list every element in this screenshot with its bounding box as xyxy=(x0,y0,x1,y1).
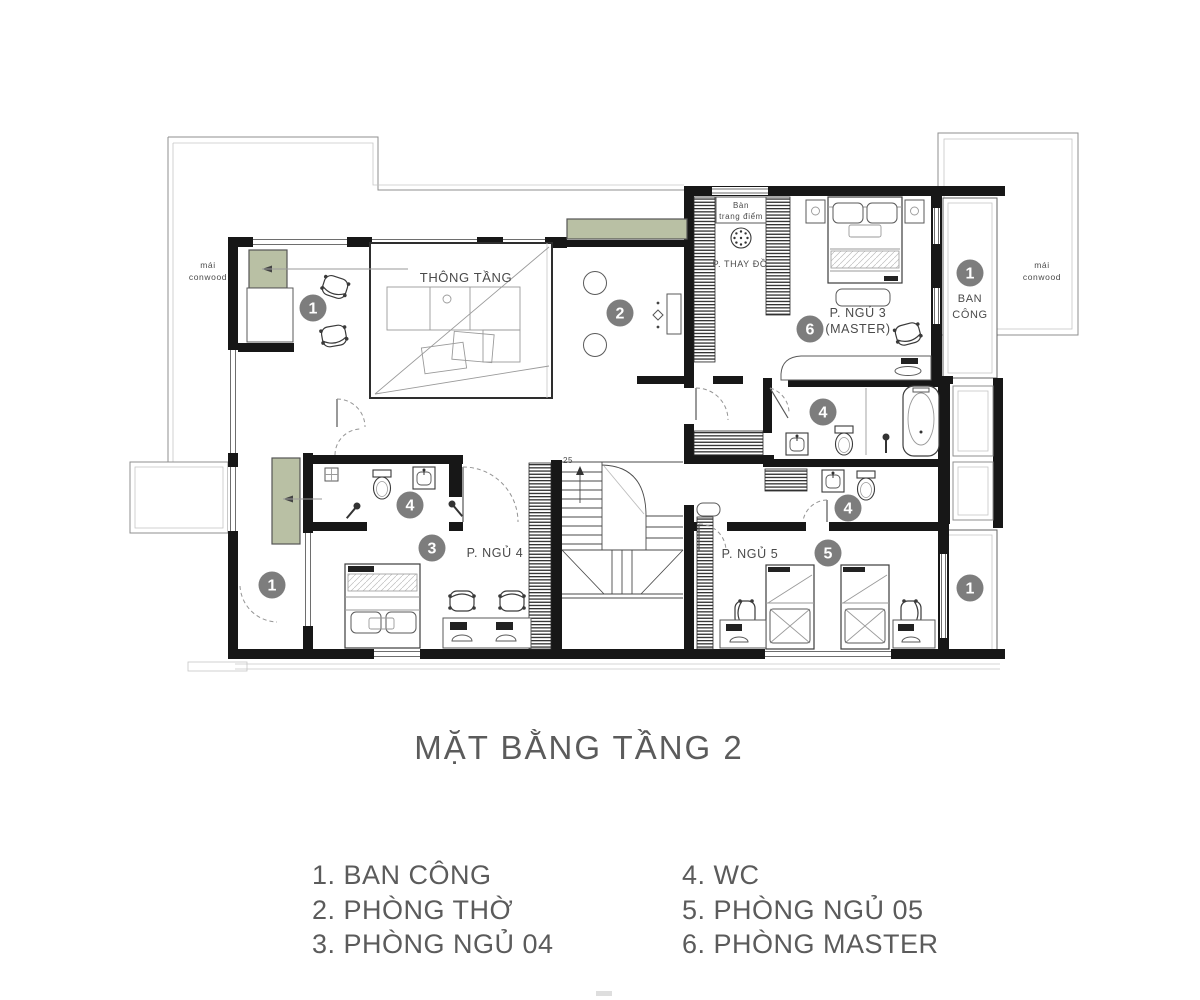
shower-wand xyxy=(344,501,362,520)
legend-item: 4. WC xyxy=(682,858,939,893)
badge-master-bedroom: 6 xyxy=(797,316,824,343)
badge-worship-room: 2 xyxy=(607,300,634,327)
staircase xyxy=(562,462,683,598)
master-bedroom xyxy=(781,197,931,380)
legend-item: 1. BAN CÔNG xyxy=(312,858,554,893)
label-balcony: BAN xyxy=(958,293,982,305)
wardrobe xyxy=(529,463,551,649)
desk-chair xyxy=(498,591,526,611)
label-roof-left: conwood xyxy=(189,272,227,282)
bed-bench xyxy=(836,289,890,306)
cropped-text-fragment xyxy=(596,991,612,996)
label-dressing-table: Bàn xyxy=(733,201,749,210)
legend-column-2: 4. WC 5. PHÒNG NGỦ 05 6. PHÒNG MASTER xyxy=(682,858,939,962)
altar-table xyxy=(653,294,681,334)
nightstand xyxy=(806,200,825,223)
label-dressing-room: P. THAY ĐỒ xyxy=(713,258,768,269)
nightstand xyxy=(893,620,935,648)
label-balcony: CÔNG xyxy=(952,308,987,321)
dressing-room xyxy=(694,197,790,362)
sink xyxy=(822,470,844,492)
wardrobe-cap xyxy=(697,503,720,516)
toilet xyxy=(835,426,853,455)
label-master: (MASTER) xyxy=(825,322,890,336)
wall-fixture xyxy=(325,468,338,481)
legend-column-1: 1. BAN CÔNG 2. PHÒNG THỜ 3. PHÒNG NGỦ 04 xyxy=(312,858,554,962)
svg-text:6: 6 xyxy=(806,322,815,339)
floor-plan-page: 1 2 6 4 4 4 3 5 xyxy=(0,0,1200,1000)
nightstand xyxy=(905,200,924,223)
svg-text:2: 2 xyxy=(616,306,625,323)
badge-bedroom5: 5 xyxy=(815,540,842,567)
label-roof-left: mái xyxy=(200,260,216,270)
double-bed xyxy=(345,564,420,648)
double-bed xyxy=(828,197,902,283)
label-bedroom5: P. NGỦ 5 xyxy=(722,546,779,561)
single-bed xyxy=(766,565,814,649)
desk-chair xyxy=(448,591,476,611)
badge-wc-bedroom4: 4 xyxy=(397,492,424,519)
badge-balcony-top-right: 1 xyxy=(957,260,984,287)
label-dressing-table: trang điểm xyxy=(719,212,763,221)
roof-ledge-left xyxy=(130,462,228,533)
armchair xyxy=(892,321,924,347)
study-desk xyxy=(443,618,531,648)
vanity-counter xyxy=(781,356,931,380)
plan-title: MẶT BẰNG TẦNG 2 xyxy=(0,729,1158,767)
planter-top-middle xyxy=(567,219,687,239)
wardrobe xyxy=(694,197,715,362)
toilet xyxy=(857,471,875,500)
svg-text:3: 3 xyxy=(428,541,437,558)
shower-wand xyxy=(883,434,890,454)
shower-shaft xyxy=(953,462,993,520)
svg-text:1: 1 xyxy=(309,301,318,318)
balcony-cabinet xyxy=(247,288,293,342)
wardrobe xyxy=(766,197,790,315)
badge-balcony-bottom-right: 1 xyxy=(957,575,984,602)
badge-balcony-top-left: 1 xyxy=(300,295,327,322)
label-bedroom4: P. NGỦ 4 xyxy=(467,545,524,560)
bathtub xyxy=(903,386,939,456)
badge-bedroom4: 3 xyxy=(419,535,446,562)
legend-item: 5. PHÒNG NGỦ 05 xyxy=(682,893,939,928)
floor-cushion xyxy=(584,334,607,357)
svg-text:1: 1 xyxy=(268,578,277,595)
badge-wc-bedroom5: 4 xyxy=(835,495,862,522)
lounge-chair xyxy=(319,324,350,348)
shower-shaft xyxy=(953,386,993,456)
floor-plan-drawing: 1 2 6 4 4 4 3 5 xyxy=(0,0,1200,1000)
label-void: THÔNG TẦNG xyxy=(420,270,512,285)
svg-text:1: 1 xyxy=(966,581,975,598)
legend-item: 3. PHÒNG NGỦ 04 xyxy=(312,927,554,962)
legend-item: 2. PHÒNG THỜ xyxy=(312,893,554,928)
badge-wc-master: 4 xyxy=(810,399,837,426)
corridor-cabinet xyxy=(694,431,763,455)
svg-text:4: 4 xyxy=(844,501,853,518)
shower-wand xyxy=(447,499,465,518)
svg-text:4: 4 xyxy=(406,498,415,515)
legend-item: 6. PHÒNG MASTER xyxy=(682,927,939,962)
sink xyxy=(413,467,435,489)
planter-bottom-left xyxy=(272,458,300,544)
label-roof-right: conwood xyxy=(1023,272,1061,282)
svg-text:5: 5 xyxy=(824,546,833,563)
balcony-top-right xyxy=(943,198,997,378)
nightstand xyxy=(720,620,766,648)
void-room xyxy=(370,243,552,398)
makeup-stool xyxy=(731,228,751,248)
label-roof-right: mái xyxy=(1034,260,1050,270)
wc-bedroom4 xyxy=(325,467,465,521)
wc-counter xyxy=(765,469,807,491)
sink xyxy=(786,433,808,455)
svg-text:4: 4 xyxy=(819,405,828,422)
lounge-chair xyxy=(319,273,351,301)
label-master: P. NGỦ 3 xyxy=(830,305,887,320)
svg-text:1: 1 xyxy=(966,266,975,283)
stair-direction-arrow xyxy=(576,466,584,475)
badge-balcony-bottom-left: 1 xyxy=(259,572,286,599)
single-bed xyxy=(841,565,889,649)
toilet xyxy=(373,470,391,499)
label-stair-count: 25 xyxy=(563,456,573,465)
floor-cushion xyxy=(584,272,607,295)
